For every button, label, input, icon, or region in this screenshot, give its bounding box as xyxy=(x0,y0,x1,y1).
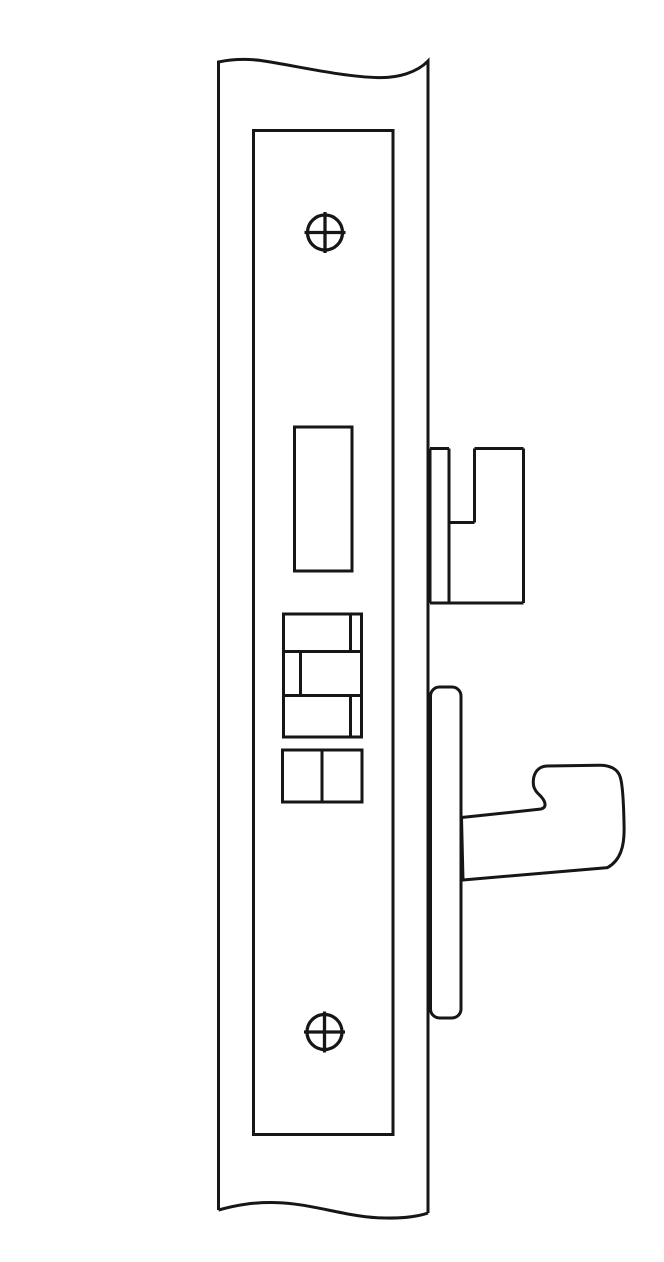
mortise-lock-side-view-diagram xyxy=(40,16,664,1246)
armored-front-strip xyxy=(431,687,462,1018)
diagram-canvas xyxy=(40,16,664,1246)
